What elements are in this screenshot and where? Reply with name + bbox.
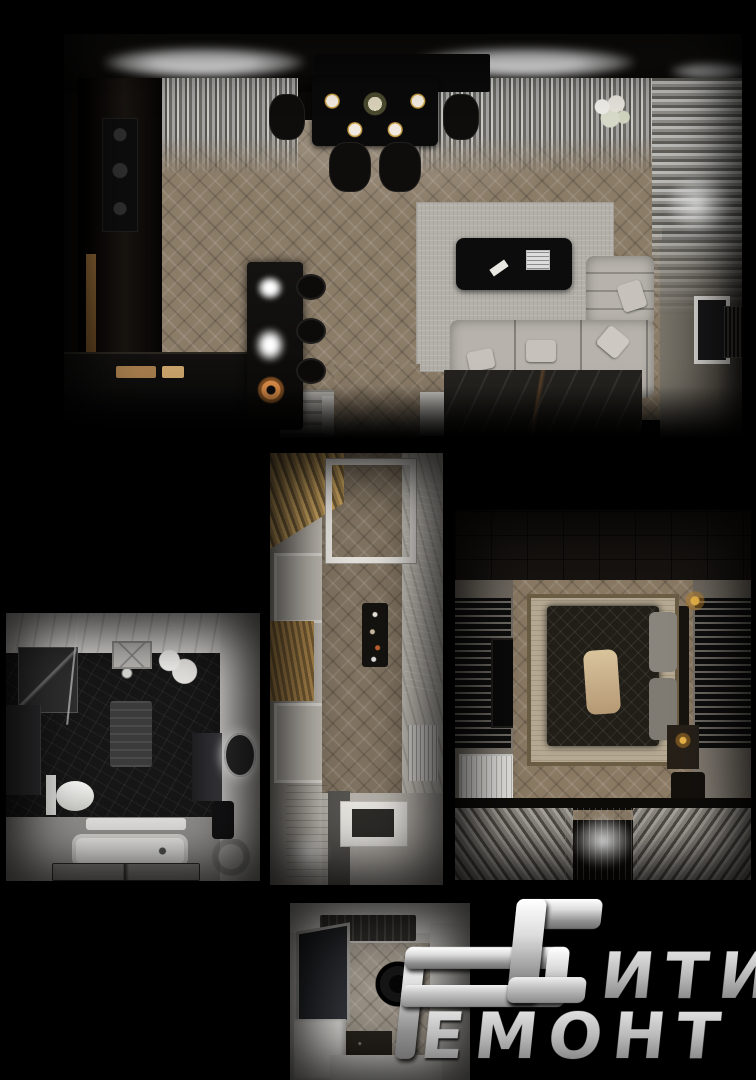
flower-bouquet: [589, 92, 633, 134]
ceiling-light-left: [104, 46, 304, 78]
shelf-light: [255, 328, 285, 362]
bar-stool: [296, 274, 326, 300]
vanity-unit: [192, 733, 222, 801]
decor-shelf: [362, 603, 388, 667]
cooktop: [102, 118, 138, 232]
bath-cabinet: [6, 705, 41, 795]
toilet: [56, 781, 94, 811]
towels: [156, 649, 198, 685]
shelf-light: [257, 276, 283, 300]
dining-table: [312, 78, 438, 146]
cutting-board-small: [162, 366, 184, 378]
nightstand-lamp: [667, 584, 707, 626]
bar-stool: [296, 318, 326, 344]
kitchen-wood-strip: [86, 254, 96, 366]
window-glow: [664, 174, 734, 234]
hallway-render: [270, 453, 443, 885]
wood-slat-panel: [270, 621, 314, 701]
dining-chair: [379, 142, 421, 192]
bathroom-render: [6, 613, 260, 881]
tub-ledge: [86, 818, 186, 830]
bedroom-render: [455, 510, 751, 880]
wall-grille: [724, 306, 742, 358]
round-lit-mirror: [224, 733, 256, 777]
cutting-board: [116, 366, 156, 378]
bottom-shadow: [64, 386, 742, 444]
floor-unit: [212, 801, 234, 839]
dining-chair: [443, 94, 479, 140]
bar-stool: [296, 358, 326, 384]
poster-canvas: ити емонт: [0, 0, 756, 1080]
wall-panel: [274, 553, 328, 623]
console-light: [288, 831, 332, 875]
bath-mats: [52, 863, 200, 881]
wall-panel: [274, 703, 328, 783]
curtain-right: [633, 808, 751, 880]
dark-ceiling-grid: [455, 510, 751, 584]
chair-with-towel: [210, 839, 252, 881]
living-room-render: [64, 34, 742, 444]
hall-radiator: [408, 725, 438, 781]
door-mat: [352, 809, 394, 837]
towel-rail: [110, 701, 152, 767]
ceiling-vent-light: [112, 641, 152, 669]
logo-word-remont-suffix: емонт: [417, 1005, 733, 1069]
curtain-left: [455, 808, 573, 880]
sofa-pillow: [526, 340, 556, 362]
blanket: [583, 649, 621, 715]
door-frame: [326, 459, 416, 563]
nightstand: [667, 725, 699, 769]
leaning-mirror: [296, 922, 350, 1032]
dining-chair: [329, 142, 371, 192]
toilet-tank: [46, 775, 56, 815]
logo-monogram: ити емонт: [376, 893, 756, 1080]
magazine: [526, 250, 550, 270]
window-light: [573, 816, 633, 868]
brand-logo: ити емонт: [386, 893, 756, 1080]
coffee-table: [456, 238, 572, 290]
dining-chair: [269, 94, 305, 140]
